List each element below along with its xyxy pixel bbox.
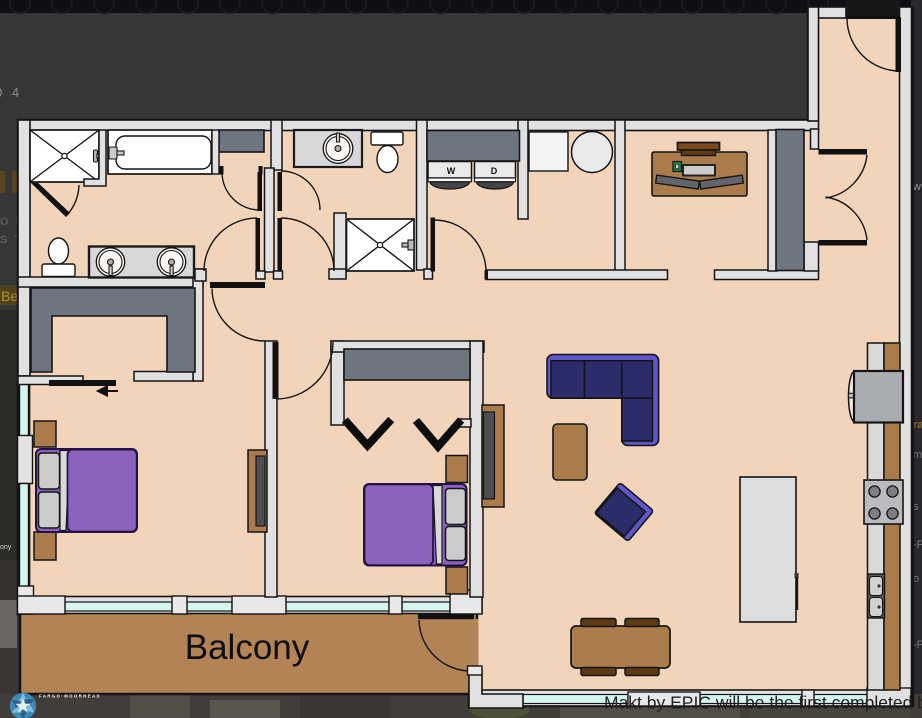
svg-text:ra: ra	[913, 419, 922, 431]
svg-text:-F: -F	[913, 639, 922, 651]
svg-text:Makt by EPIC will be the first: Makt by EPIC will be the first completed…	[604, 693, 922, 713]
svg-text:0 4: 0 4	[0, 85, 22, 100]
svg-text:D: D	[491, 166, 498, 176]
svg-text:W: W	[447, 166, 456, 176]
svg-text:ony: ony	[0, 544, 12, 551]
svg-text:-F: -F	[913, 539, 922, 551]
svg-text:FARGO·MOORHEAD: FARGO·MOORHEAD	[39, 694, 101, 699]
svg-text:Be: Be	[1, 288, 18, 304]
svg-text:Balcony: Balcony	[185, 628, 310, 667]
svg-text:m: m	[913, 449, 922, 461]
